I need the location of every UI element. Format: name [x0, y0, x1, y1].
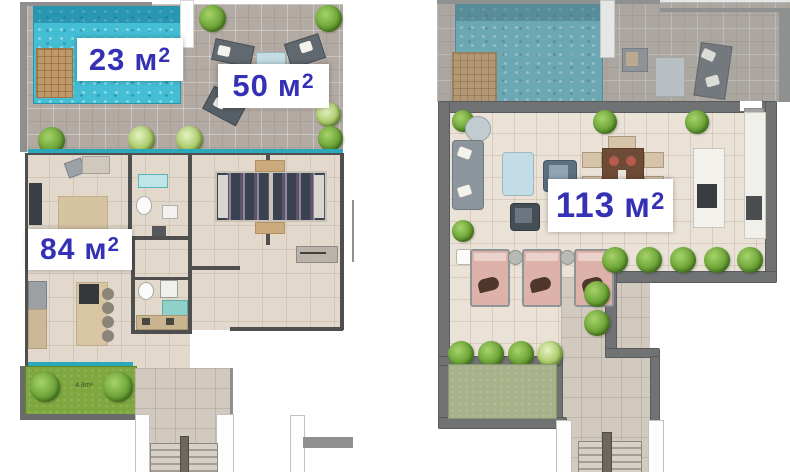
area-unit: м [134, 42, 158, 78]
lounger-pillow [477, 276, 501, 294]
area-sup: 2 [108, 235, 120, 255]
wall [340, 153, 344, 330]
door-jamb [556, 420, 572, 472]
shelf-unit [29, 183, 42, 225]
bush-icon [584, 281, 610, 307]
wall [20, 366, 25, 420]
stair-handrail [180, 436, 189, 472]
floorplan-right: 113 м2 [430, 0, 790, 472]
bush-icon [103, 372, 133, 402]
appliance [746, 196, 762, 220]
area-label-terrace: 50 м2 [218, 64, 329, 108]
toilet [138, 282, 154, 300]
floorplan-left: 23 м2 50 м2 [0, 0, 360, 472]
bench [255, 160, 285, 172]
area-value: 50 [232, 68, 268, 104]
garden-area-note: 4.8m² [62, 382, 106, 389]
bush-icon [30, 372, 60, 402]
bar-stool [102, 288, 114, 300]
pool-edge [34, 7, 180, 23]
area-sup: 2 [651, 190, 665, 214]
sink [162, 205, 178, 219]
wall [131, 330, 192, 334]
side-table [508, 250, 523, 265]
cooktop [79, 284, 99, 304]
dining-chair [644, 152, 664, 168]
area-label-penthouse: 113 м2 [548, 179, 673, 232]
area-value: 113 [556, 186, 615, 226]
bar-stool [102, 330, 114, 342]
wall [230, 327, 343, 331]
wall [303, 437, 353, 448]
sun-lounger [470, 249, 510, 307]
wall [128, 153, 132, 238]
bush-icon [737, 247, 763, 273]
dim-overlay [437, 0, 790, 102]
console-items [142, 318, 150, 325]
wall [650, 356, 660, 424]
wall [20, 2, 27, 152]
wall [188, 153, 192, 330]
bush-icon [670, 247, 696, 273]
kitchen-cabinet [28, 309, 47, 349]
wardrobe [296, 246, 338, 263]
table-setting [609, 156, 619, 166]
sun-lounger [522, 249, 562, 307]
lounger-headrest [474, 253, 506, 261]
bush-icon [602, 247, 628, 273]
side-table [560, 250, 575, 265]
shower [162, 300, 188, 316]
wood-deck [36, 48, 73, 98]
area-label-apartment: 84 м2 [28, 229, 132, 270]
wall [230, 368, 233, 415]
lounger-pillow [529, 276, 553, 294]
blue-ottoman [502, 152, 534, 196]
bush-icon [593, 110, 617, 134]
shower [138, 174, 168, 188]
oven [697, 184, 717, 208]
area-unit: м [84, 233, 107, 267]
console-items [166, 318, 174, 325]
bed-pillow [218, 175, 228, 218]
bed [215, 171, 271, 222]
area-unit: м [278, 68, 302, 104]
wardrobe-rod [300, 252, 326, 254]
bush-icon [315, 5, 342, 32]
bush-icon [584, 310, 610, 336]
lounger-headrest [526, 253, 558, 261]
wall [765, 101, 777, 283]
armchair-seat [515, 208, 532, 223]
bush-icon [636, 247, 662, 273]
round-table [465, 116, 491, 142]
area-value: 84 [40, 233, 75, 267]
table-setting [626, 156, 636, 166]
floorplan-image: 23 м2 50 м2 [0, 0, 790, 472]
wall [192, 266, 240, 270]
bath-cabinet [152, 226, 166, 236]
wall [25, 153, 343, 155]
door-jamb [216, 414, 234, 472]
area-sup: 2 [158, 45, 171, 66]
balcony-rail [352, 200, 354, 262]
bench [255, 222, 285, 234]
bush-icon [199, 5, 226, 32]
stair-handrail [602, 432, 612, 472]
bush-icon [704, 247, 730, 273]
bar-stool [102, 302, 114, 314]
area-value: 23 [89, 42, 125, 78]
toilet [136, 196, 152, 215]
bed-pillow [314, 175, 324, 218]
bush-icon [452, 220, 474, 242]
bush-icon [685, 110, 709, 134]
cushion [217, 45, 231, 57]
washer [160, 280, 178, 298]
desk [82, 156, 110, 174]
area-label-pool: 23 м2 [77, 38, 183, 81]
lawn [448, 364, 557, 419]
bed [271, 171, 327, 222]
wall [128, 236, 192, 240]
rug [58, 196, 108, 232]
door-jamb [135, 414, 150, 472]
door-jamb [648, 420, 664, 472]
bush-icon [318, 126, 343, 151]
wall [20, 414, 140, 420]
bar-stool [102, 316, 114, 328]
area-sup: 2 [302, 71, 315, 92]
area-unit: м [624, 186, 651, 226]
dining-chair [582, 152, 602, 168]
fridge [28, 281, 47, 311]
